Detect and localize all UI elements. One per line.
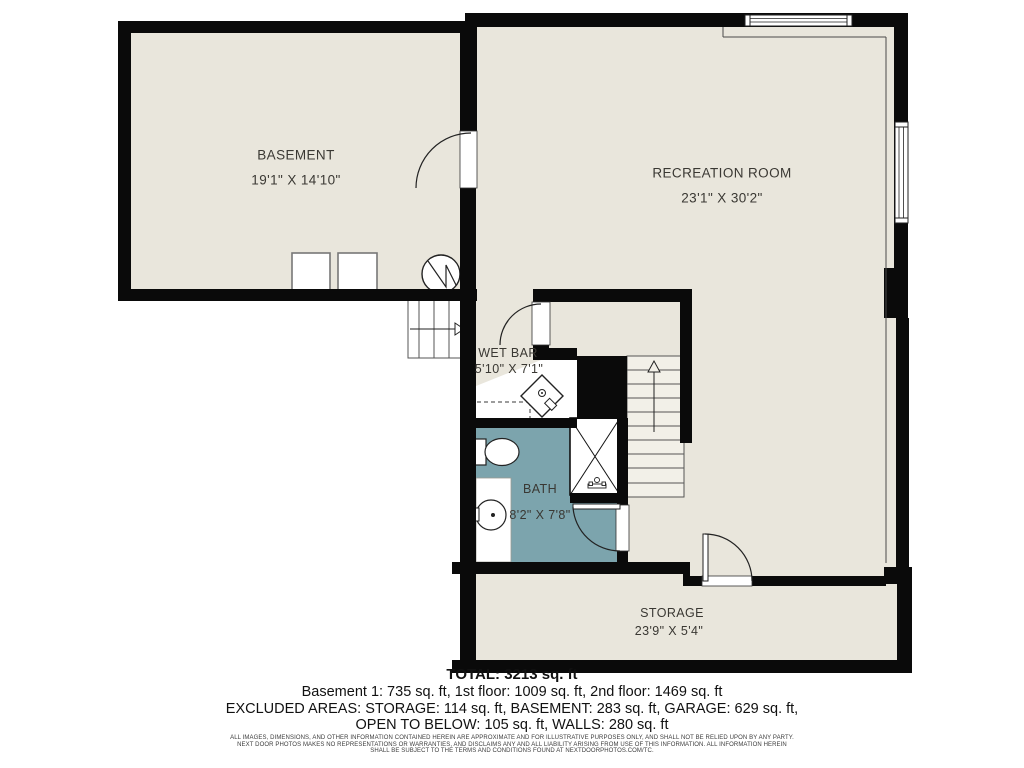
floor-plan-page: BASEMENT 19'1" X 14'10" RECREATION ROOM … <box>0 0 1024 768</box>
disclaimer-line-1: ALL IMAGES, DIMENSIONS, AND OTHER INFORM… <box>0 735 1024 742</box>
disclaimer-line-2: NEXT DOOR PHOTOS MAKES NO REPRESENTATION… <box>0 742 1024 749</box>
stairs-basement <box>408 300 464 358</box>
room-dims-basement: 19'1" X 14'10" <box>251 173 340 188</box>
shower-icon <box>570 418 620 495</box>
bath-sink-icon <box>472 478 511 562</box>
disclaimer-line-3: SHALL BE SUBJECT TO THE TERMS AND CONDIT… <box>0 748 1024 755</box>
water-heater-icon <box>422 255 460 293</box>
room-label-recreation-room: RECREATION ROOM <box>652 166 791 181</box>
room-label-wet-bar: WET BAR <box>478 346 538 360</box>
total-area-text: TOTAL: 3213 sq. ft <box>0 666 1024 684</box>
floor-plan-canvas <box>0 0 1024 768</box>
disclaimer-text: ALL IMAGES, DIMENSIONS, AND OTHER INFORM… <box>0 735 1024 755</box>
excluded-area-text-2: OPEN TO BELOW: 105 sq. ft, WALLS: 280 sq… <box>0 717 1024 734</box>
room-dims-recreation-room: 23'1" X 30'2" <box>681 191 763 206</box>
stairs-main <box>627 356 684 497</box>
toilet-icon <box>475 439 519 466</box>
floors-area-text: Basement 1: 735 sq. ft, 1st floor: 1009 … <box>0 684 1024 701</box>
room-label-basement: BASEMENT <box>257 148 334 163</box>
window-right <box>895 122 908 223</box>
room-label-storage: STORAGE <box>640 606 704 620</box>
room-label-bath: BATH <box>523 482 557 496</box>
room-dims-storage: 23'9" X 5'4" <box>635 624 704 638</box>
excluded-area-text: EXCLUDED AREAS: STORAGE: 114 sq. ft, BAS… <box>0 701 1024 718</box>
area-summary: TOTAL: 3213 sq. ft Basement 1: 735 sq. f… <box>0 666 1024 734</box>
room-dims-wet-bar: 5'10" X 7'1" <box>475 362 544 376</box>
room-dims-bath: 8'2" X 7'8" <box>509 508 570 522</box>
window-top <box>745 15 852 26</box>
